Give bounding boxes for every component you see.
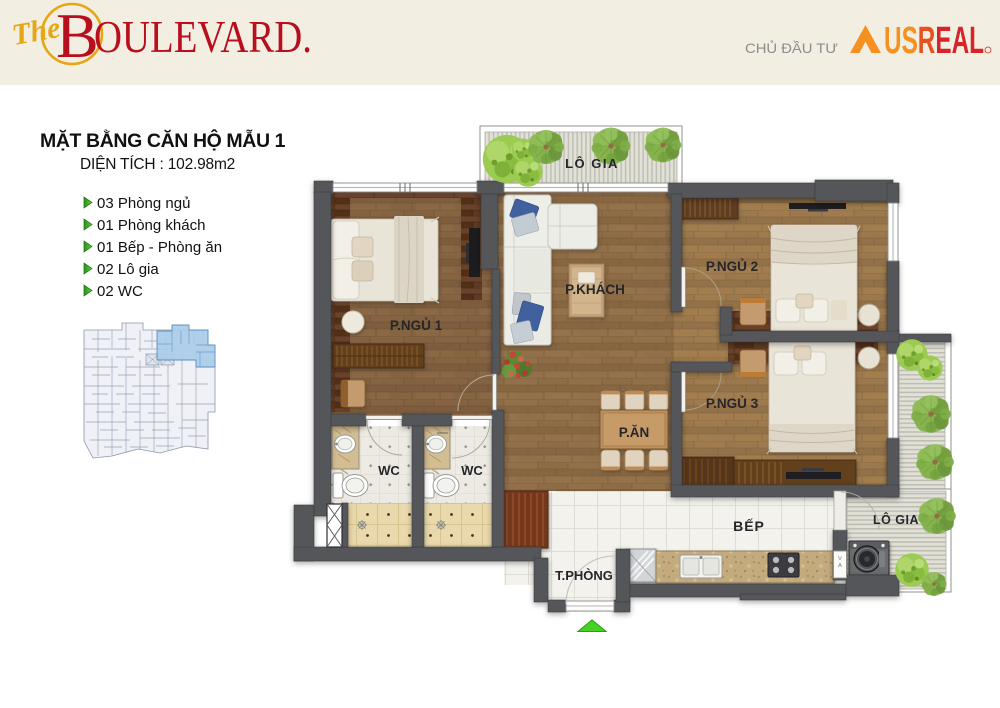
svg-text:WC: WC xyxy=(378,463,400,478)
svg-text:V: V xyxy=(838,556,842,562)
svg-text:LÔ GIA: LÔ GIA xyxy=(565,156,619,171)
svg-text:P.NGỦ 1: P.NGỦ 1 xyxy=(390,318,443,333)
svg-text:P.NGỦ 2: P.NGỦ 2 xyxy=(706,259,758,274)
svg-text:LÔ GIA: LÔ GIA xyxy=(873,512,919,527)
svg-text:A: A xyxy=(838,563,842,569)
svg-text:WC: WC xyxy=(461,463,483,478)
svg-text:P.KHÁCH: P.KHÁCH xyxy=(565,282,625,297)
svg-text:P.NGỦ 3: P.NGỦ 3 xyxy=(706,396,759,411)
svg-text:P.ĂN: P.ĂN xyxy=(619,425,650,440)
svg-text:T.PHÒNG: T.PHÒNG xyxy=(555,568,613,583)
svg-text:BẾP: BẾP xyxy=(733,518,765,534)
